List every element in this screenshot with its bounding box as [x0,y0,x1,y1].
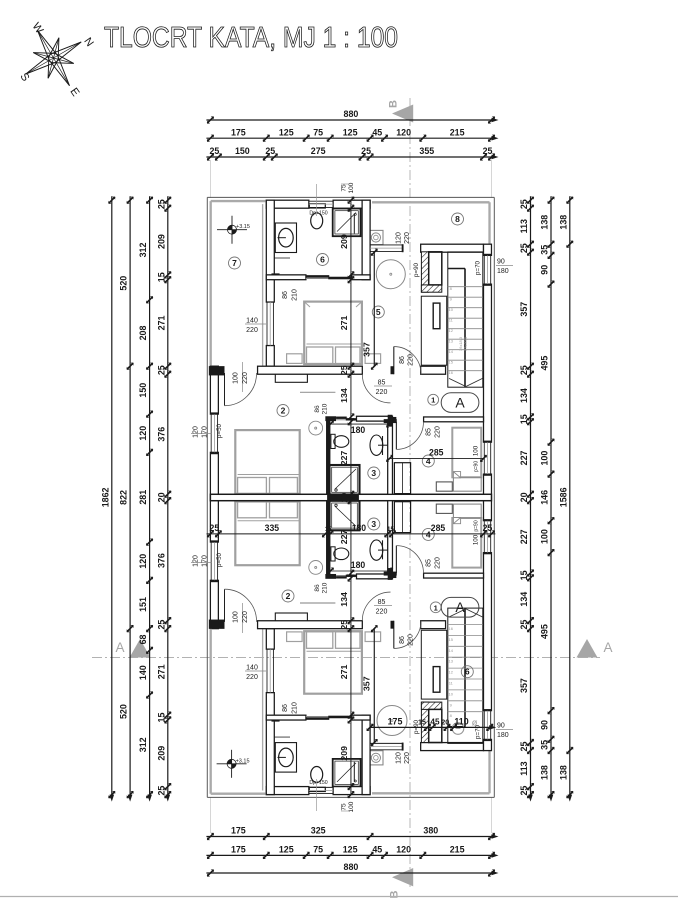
svg-text:p=90: p=90 [413,262,420,276]
svg-text:170: 170 [201,555,208,567]
svg-text:2: 2 [281,405,286,415]
svg-text:15: 15 [156,713,166,723]
svg-text:85: 85 [378,380,386,387]
svg-text:+3.15: +3.15 [236,224,250,230]
svg-text:Dp+150: Dp+150 [309,780,327,786]
svg-text:210: 210 [322,582,329,593]
svg-text:A: A [603,640,612,655]
svg-text:357: 357 [519,678,529,693]
svg-text:100: 100 [473,445,480,456]
svg-text:285: 285 [431,523,446,533]
svg-text:180: 180 [351,425,366,435]
svg-text:25: 25 [361,146,371,156]
svg-text:p=90: p=90 [474,520,480,531]
svg-text:p=50: p=50 [216,423,223,437]
svg-text:175: 175 [231,845,246,855]
svg-text:16: 16 [449,370,454,375]
svg-text:175: 175 [231,127,246,137]
svg-text:220: 220 [376,609,388,616]
svg-text:150: 150 [138,383,148,398]
svg-text:170: 170 [201,426,208,438]
svg-text:25: 25 [483,523,493,533]
svg-text:15: 15 [519,414,529,424]
svg-text:220: 220 [404,232,411,244]
svg-text:13: 13 [449,338,454,343]
svg-text:180: 180 [497,732,509,739]
svg-text:p=90: p=90 [474,461,480,472]
svg-text:880: 880 [344,109,359,119]
svg-text:140: 140 [246,318,258,325]
svg-text:85: 85 [378,599,386,606]
svg-text:215: 215 [450,127,465,137]
svg-text:25: 25 [156,620,166,630]
svg-text:45: 45 [430,718,440,727]
svg-text:110: 110 [454,717,468,727]
svg-text:25: 25 [210,523,220,533]
svg-text:175: 175 [388,717,403,727]
svg-text:376: 376 [156,427,166,442]
svg-text:86: 86 [399,636,406,644]
svg-text:220: 220 [242,372,249,384]
svg-text:12: 12 [449,670,454,675]
svg-text:271: 271 [156,664,166,679]
svg-text:25: 25 [483,146,493,156]
svg-text:100: 100 [540,451,550,466]
svg-text:B: B [388,100,400,108]
svg-text:25: 25 [519,620,529,630]
svg-text:85: 85 [425,559,432,567]
svg-text:281: 281 [138,490,148,505]
svg-text:35: 35 [540,245,550,255]
svg-text:1: 1 [431,396,435,405]
svg-text:15: 15 [449,359,454,364]
svg-text:45: 45 [372,127,382,137]
svg-text:271: 271 [339,664,349,679]
svg-text:335: 335 [265,523,280,533]
svg-text:5: 5 [376,307,381,317]
svg-text:25: 25 [339,620,349,630]
svg-text:227: 227 [519,529,529,544]
svg-text:100: 100 [232,372,239,384]
svg-text:+3.15: +3.15 [236,758,250,764]
svg-text:3: 3 [371,468,376,478]
svg-text:13: 13 [449,659,454,664]
svg-text:220: 220 [435,426,442,438]
svg-text:134: 134 [339,388,349,403]
svg-text:822: 822 [119,490,129,505]
svg-text:12: 12 [449,328,454,333]
svg-text:220: 220 [408,354,415,366]
svg-text:25: 25 [156,365,166,375]
svg-text:A: A [455,599,465,615]
svg-text:15: 15 [387,526,394,533]
svg-text:275: 275 [311,146,326,156]
svg-text:355: 355 [419,146,434,156]
svg-text:14: 14 [449,648,454,653]
svg-text:140: 140 [138,665,148,680]
svg-text:25: 25 [519,243,529,253]
svg-text:75: 75 [313,845,323,855]
svg-text:120: 120 [395,232,402,244]
svg-text:p=50: p=50 [216,552,223,566]
svg-text:215: 215 [450,845,465,855]
svg-text:75: 75 [341,184,348,192]
svg-text:25: 25 [156,786,166,796]
svg-text:125: 125 [279,845,294,855]
svg-text:138: 138 [558,215,568,230]
svg-text:10: 10 [449,691,454,696]
svg-text:150: 150 [235,146,250,156]
svg-text:134: 134 [519,592,529,607]
svg-text:p=90: p=90 [413,719,420,733]
svg-text:113: 113 [519,761,529,775]
svg-text:138: 138 [540,215,550,230]
svg-text:125: 125 [343,845,358,855]
svg-text:120: 120 [396,127,411,137]
svg-text:15: 15 [325,526,332,533]
svg-text:210: 210 [292,702,299,714]
svg-text:120: 120 [193,555,200,567]
svg-text:209: 209 [339,746,349,761]
svg-text:312: 312 [138,243,148,258]
svg-text:86: 86 [282,291,289,299]
svg-text:75: 75 [341,803,348,811]
svg-text:175: 175 [231,826,246,836]
svg-text:209: 209 [339,234,349,249]
svg-text:A: A [115,640,124,655]
svg-text:14: 14 [449,349,454,354]
svg-text:180: 180 [351,560,366,570]
svg-text:86: 86 [314,405,321,413]
svg-text:p=70: p=70 [474,724,481,738]
svg-text:134: 134 [519,388,529,403]
svg-text:25: 25 [265,146,275,156]
svg-text:15: 15 [449,637,454,642]
svg-text:68: 68 [138,634,148,644]
svg-text:2: 2 [286,591,291,601]
svg-text:220: 220 [408,634,415,646]
svg-text:880: 880 [344,862,359,872]
svg-text:25: 25 [519,742,529,752]
svg-text:220: 220 [376,389,388,396]
svg-text:35: 35 [540,740,550,750]
svg-text:20: 20 [339,492,349,502]
svg-text:495: 495 [540,624,550,639]
svg-text:125: 125 [279,127,294,137]
svg-text:25: 25 [339,365,349,375]
svg-text:20: 20 [519,492,529,502]
svg-text:312: 312 [138,737,148,752]
svg-text:134: 134 [339,592,349,607]
svg-text:209: 209 [156,234,166,249]
svg-text:100: 100 [473,534,480,545]
svg-text:100: 100 [232,611,239,623]
svg-text:100: 100 [540,529,550,544]
svg-text:520: 520 [119,704,129,719]
svg-text:146: 146 [540,490,550,505]
svg-text:90: 90 [497,722,505,729]
svg-text:220: 220 [242,611,249,623]
svg-text:271: 271 [339,315,349,330]
svg-text:45: 45 [372,845,382,855]
svg-text:25: 25 [519,786,529,796]
svg-text:520: 520 [119,276,129,291]
svg-text:140: 140 [246,664,258,671]
svg-text:90: 90 [497,259,505,266]
svg-text:227: 227 [339,451,349,466]
svg-text:86: 86 [282,704,289,712]
svg-text:120: 120 [193,426,200,438]
svg-text:15: 15 [156,272,166,282]
svg-text:120: 120 [395,752,402,764]
svg-text:151: 151 [138,597,148,612]
svg-text:A: A [455,395,465,411]
svg-text:6: 6 [465,667,470,677]
svg-text:1: 1 [434,603,438,612]
svg-text:285: 285 [429,448,444,458]
svg-text:86: 86 [314,584,321,592]
svg-text:90: 90 [540,720,550,730]
svg-text:17x30,0: 17x30,0 [463,336,468,351]
svg-text:Dp+150: Dp+150 [309,211,327,217]
svg-text:357: 357 [519,302,529,317]
svg-text:120: 120 [138,554,148,569]
svg-text:16: 16 [449,626,454,631]
svg-text:210: 210 [292,289,299,301]
svg-text:208: 208 [138,326,148,341]
svg-text:8: 8 [455,214,460,224]
svg-text:357: 357 [362,676,372,691]
svg-text:113: 113 [519,219,529,233]
svg-text:25: 25 [209,146,219,156]
svg-text:25: 25 [519,199,529,209]
svg-text:1862: 1862 [100,487,110,507]
svg-text:90: 90 [540,265,550,275]
svg-text:6: 6 [320,254,325,264]
svg-text:p=70: p=70 [474,260,481,274]
svg-text:209: 209 [156,746,166,761]
svg-text:10: 10 [449,307,454,312]
svg-text:271: 271 [156,315,166,330]
svg-text:220: 220 [435,557,442,569]
svg-text:TLOCRT KATA, MJ 1 : 100: TLOCRT KATA, MJ 1 : 100 [104,22,398,54]
svg-text:7: 7 [232,258,237,268]
svg-text:180: 180 [497,268,509,275]
svg-text:220: 220 [246,674,258,681]
svg-text:75: 75 [313,127,323,137]
svg-text:1586: 1586 [558,487,568,507]
svg-text:15: 15 [519,570,529,580]
svg-text:495: 495 [540,356,550,371]
svg-text:120: 120 [138,426,148,441]
svg-text:376: 376 [156,553,166,568]
svg-text:325: 325 [311,826,326,836]
svg-text:227: 227 [339,529,349,544]
svg-text:357: 357 [362,342,372,357]
svg-text:227: 227 [519,450,529,465]
svg-text:25: 25 [156,199,166,209]
svg-text:125: 125 [343,127,358,137]
svg-text:138: 138 [558,765,568,780]
svg-text:20: 20 [441,718,449,727]
svg-text:220: 220 [404,752,411,764]
svg-text:20: 20 [156,492,166,502]
svg-text:180: 180 [352,523,367,533]
svg-text:85: 85 [425,428,432,436]
svg-text:25: 25 [519,365,529,375]
svg-text:138: 138 [540,765,550,780]
svg-text:220: 220 [246,327,258,334]
svg-text:86: 86 [399,356,406,364]
svg-text:3: 3 [371,519,376,529]
svg-text:210: 210 [322,403,329,414]
svg-text:B: B [389,890,401,898]
svg-text:380: 380 [423,826,438,836]
svg-text:120: 120 [396,845,411,855]
